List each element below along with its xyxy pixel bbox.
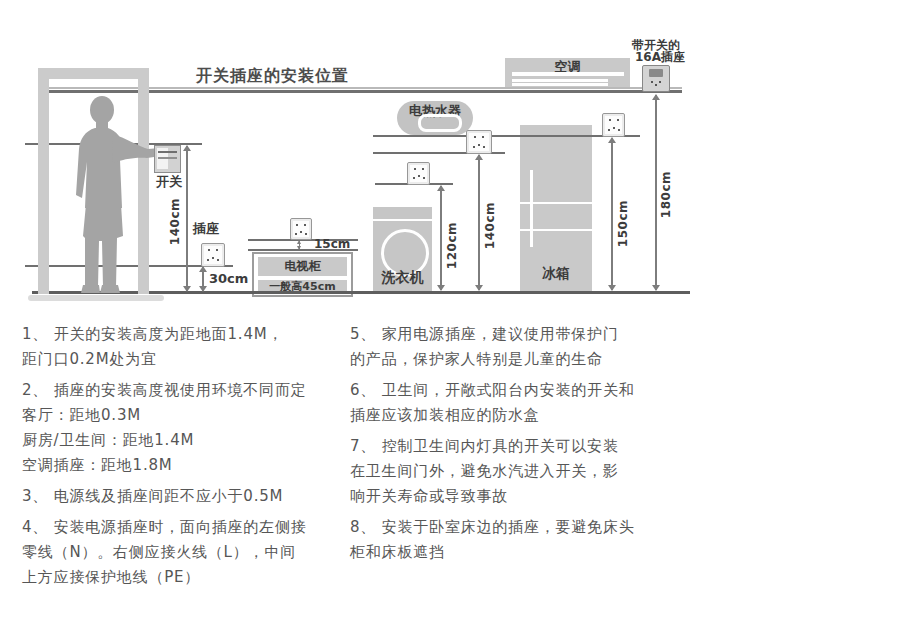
person-legs xyxy=(83,204,123,287)
fridge-label: 冰箱 xyxy=(520,265,592,283)
note-line: 5、 家用电源插座，建议使用带保护门 xyxy=(350,322,680,347)
water-heater-panel xyxy=(418,114,462,132)
switched-16a-socket-icon xyxy=(642,65,670,92)
switch-label: 开关 xyxy=(156,173,182,191)
power-socket-icon-washer xyxy=(407,162,430,185)
dimension-label-140cm-left: 140cm xyxy=(168,198,182,245)
note-line: 上方应接保护地线（PE） xyxy=(22,565,352,590)
note-item-3: 3、 电源线及插座间距不应小于0.5M xyxy=(22,484,352,509)
note-line: 零线（N）。右侧应接火线（L），中间 xyxy=(22,540,352,565)
door-frame-top-beam xyxy=(38,68,149,79)
notes-column-left: 1、 开关的安装高度为距地面1.4M， 距门口0.2M处为宜 2、 插座的安装高… xyxy=(22,322,352,596)
power-socket-icon-heater xyxy=(466,130,492,154)
note-line: 距门口0.2M处为宜 xyxy=(22,347,352,372)
note-item-8: 8、 安装于卧室床边的插座，要避免床头 柜和床板遮挡 xyxy=(350,515,680,565)
note-line: 厨房/卫生间：距地1.4M xyxy=(22,428,352,453)
dimension-arrow-150cm xyxy=(611,138,613,290)
note-item-1: 1、 开关的安装高度为距地面1.4M， 距门口0.2M处为宜 xyxy=(22,322,352,372)
washer-lid-line xyxy=(373,219,432,221)
dimension-arrow-120cm xyxy=(440,186,442,290)
note-line: 客厅：距地0.3M xyxy=(22,403,352,428)
note-line: 插座应该加装相应的防水盒 xyxy=(350,403,680,428)
dimension-label-140cm-right: 140cm xyxy=(483,202,497,249)
ac-vent xyxy=(512,83,608,86)
height-line-150cm xyxy=(373,135,640,137)
dimension-arrow-15cm xyxy=(299,241,300,249)
person-figure xyxy=(70,92,170,297)
ac-vent xyxy=(512,72,624,76)
notes-column-right: 5、 家用电源插座，建议使用带保护门 的产品，保护家人特别是儿童的生命 6、 卫… xyxy=(350,322,680,571)
dimension-label-15cm: 15cm xyxy=(314,237,350,251)
power-socket-icon-fridge xyxy=(602,113,625,137)
note-item-4: 4、 安装电源插座时，面向插座的左侧接 零线（N）。右侧应接火线（L），中间 上… xyxy=(22,515,352,590)
note-line: 在卫生间门外，避免水汽进入开关，影 xyxy=(350,459,680,484)
note-line: 响开关寿命或导致事故 xyxy=(350,484,680,509)
power-socket-icon-tv xyxy=(290,218,312,240)
person-foot-left xyxy=(81,285,100,293)
dimension-label-30cm: 30cm xyxy=(209,271,248,286)
fridge: 冰箱 xyxy=(520,125,592,292)
note-line: 4、 安装电源插座时，面向插座的左侧接 xyxy=(22,515,352,540)
note-item-7: 7、 控制卫生间内灯具的开关可以安装 在卫生间门外，避免水汽进入开关，影 响开关… xyxy=(350,434,680,509)
door-frame-left-post xyxy=(38,68,49,294)
water-heater: 电热水器 xyxy=(397,101,473,135)
note-line: 7、 控制卫生间内灯具的开关可以安装 xyxy=(350,434,680,459)
dimension-arrow-30cm xyxy=(202,267,204,291)
installation-infographic: 开关插座的安装位置 开关 插座 140cm 30cm 15cm 电视柜 一般高4… xyxy=(0,0,900,621)
dimension-arrow-140cm-left xyxy=(186,146,188,291)
air-conditioner: 空调 xyxy=(505,58,630,87)
tv-cabinet-label: 电视柜 xyxy=(258,257,347,276)
washer-label: 洗衣机 xyxy=(373,269,432,287)
dimension-label-150cm: 150cm xyxy=(616,200,630,247)
socket-label: 插座 xyxy=(193,220,219,238)
diagram-title: 开关插座的安装位置 xyxy=(196,66,349,87)
dimension-arrow-140cm-right xyxy=(478,155,480,290)
note-item-2: 2、 插座的安装高度视使用环境不同而定 客厅：距地0.3M 厨房/卫生间：距地1… xyxy=(22,378,352,478)
washing-machine: 洗衣机 xyxy=(373,207,432,292)
dimension-label-120cm: 120cm xyxy=(445,222,459,269)
note-line: 6、 卫生间，开敞式阳台内安装的开关和 xyxy=(350,378,680,403)
note-line: 3、 电源线及插座间距不应小于0.5M xyxy=(22,484,352,509)
dimension-label-180cm: 180cm xyxy=(659,171,673,218)
note-line: 2、 插座的安装高度视使用环境不同而定 xyxy=(22,378,352,403)
note-line: 1、 开关的安装高度为距地面1.4M， xyxy=(22,322,352,347)
dimension-arrow-180cm xyxy=(655,95,657,290)
wall-switch-icon xyxy=(154,145,181,173)
note-line: 8、 安装于卧室床边的插座，要避免床头 xyxy=(350,515,680,540)
person-foot-right xyxy=(100,285,120,293)
note-line: 的产品，保护家人特别是儿童的生命 xyxy=(350,347,680,372)
note-line: 柜和床板遮挡 xyxy=(350,540,680,565)
ac-socket-note-line2: 16A插座 xyxy=(635,49,685,66)
ac-vent xyxy=(512,79,608,82)
note-item-5: 5、 家用电源插座，建议使用带保护门 的产品，保护家人特别是儿童的生命 xyxy=(350,322,680,372)
fridge-handle xyxy=(530,170,533,247)
note-line: 空调插座：距地1.8M xyxy=(22,453,352,478)
power-socket-icon-entry xyxy=(201,243,225,267)
note-item-6: 6、 卫生间，开敞式阳台内安装的开关和 插座应该加装相应的防水盒 xyxy=(350,378,680,428)
